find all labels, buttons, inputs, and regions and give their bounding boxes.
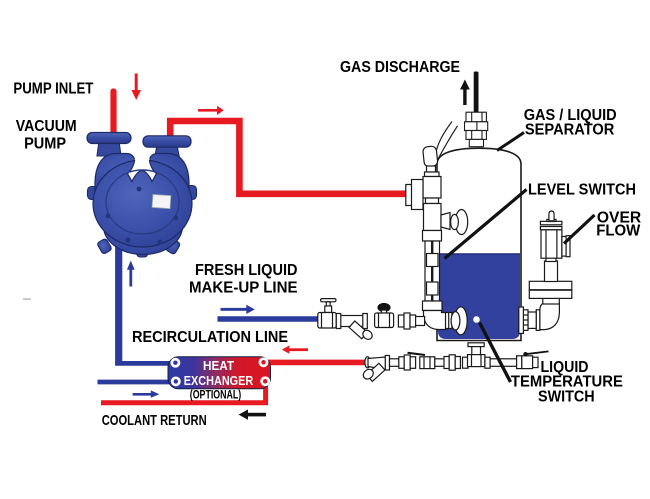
svg-text:EXCHANGER: EXCHANGER [184,373,254,388]
svg-text:FRESH LIQUID: FRESH LIQUID [195,262,298,279]
svg-text:SWITCH: SWITCH [538,389,595,406]
svg-text:VACUUM: VACUUM [16,118,77,135]
svg-text:PUMP INLET: PUMP INLET [13,81,93,98]
svg-text:(OPTIONAL): (OPTIONAL) [190,387,242,401]
svg-text:GAS DISCHARGE: GAS DISCHARGE [340,59,460,76]
svg-text:FLOW: FLOW [596,222,641,239]
svg-text:COOLANT RETURN: COOLANT RETURN [102,412,207,429]
svg-text:HEAT: HEAT [203,358,234,373]
svg-text:SEPARATOR: SEPARATOR [525,121,615,138]
svg-text:RECIRCULATION LINE: RECIRCULATION LINE [132,329,288,346]
svg-text:LEVEL SWITCH: LEVEL SWITCH [528,182,636,199]
svg-text:MAKE-UP LINE: MAKE-UP LINE [189,279,298,296]
svg-text:PUMP: PUMP [24,136,66,153]
